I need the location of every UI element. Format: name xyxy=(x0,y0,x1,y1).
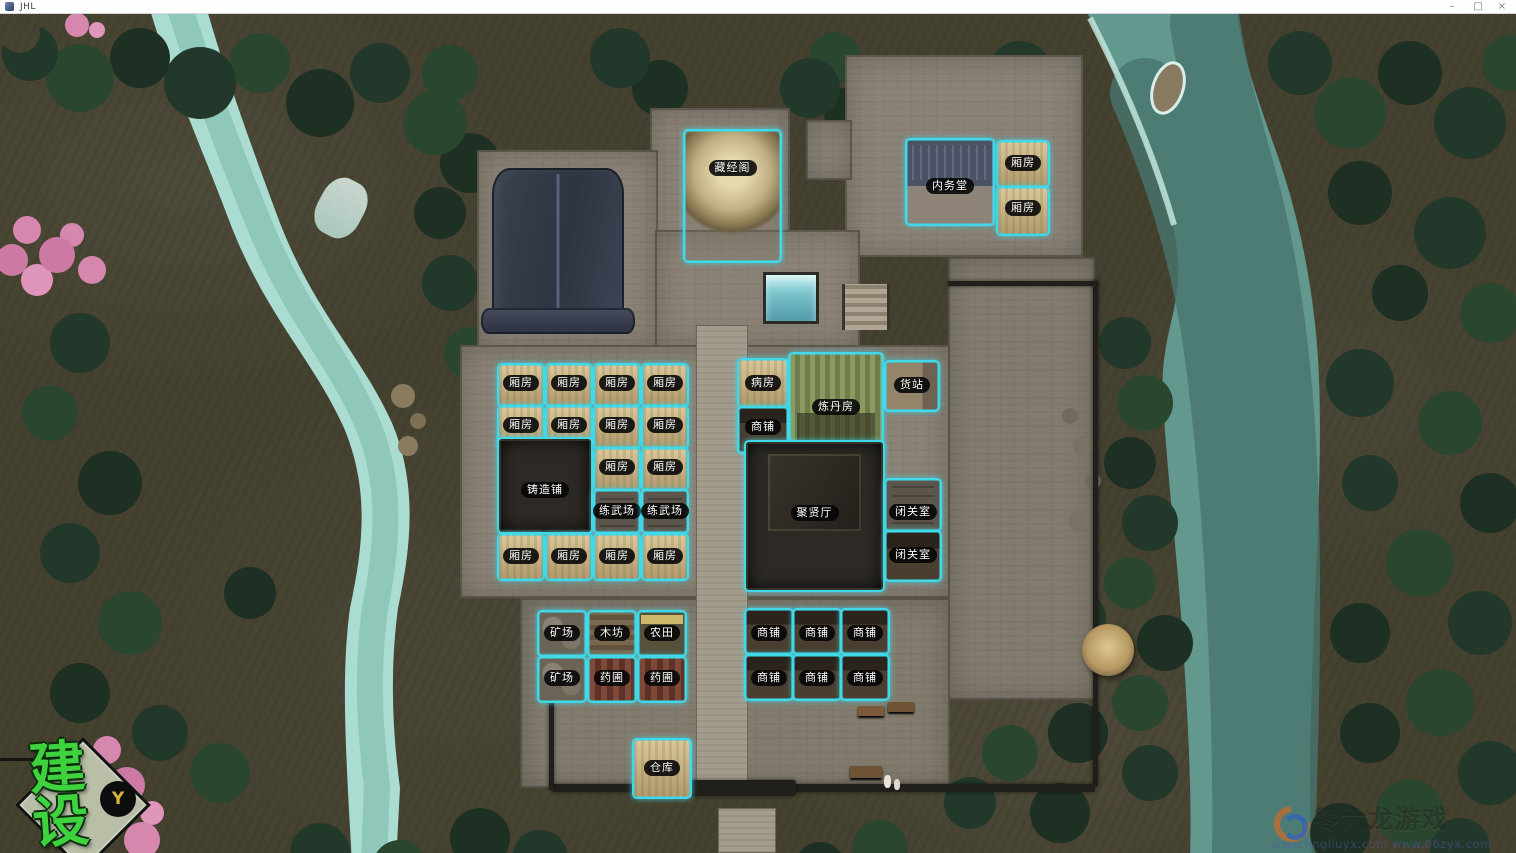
building-label: 商铺 xyxy=(847,670,883,686)
building-label: 厢房 xyxy=(647,459,683,475)
building-alchemy[interactable]: 炼丹房 xyxy=(788,352,884,454)
building-hall-blue[interactable]: 内务堂 xyxy=(905,138,995,226)
building-label: 练武场 xyxy=(593,503,641,519)
building-room[interactable]: 厢房 xyxy=(497,363,545,407)
building-label: 厢房 xyxy=(599,548,635,564)
building-great-hall[interactable]: 聚贤厅 xyxy=(744,440,885,592)
watermark-urls: www.lingliuyx.com www.06zyx.com xyxy=(1272,837,1508,851)
building-room[interactable]: 厢房 xyxy=(641,533,689,581)
building-shop[interactable]: 商铺 xyxy=(744,608,794,655)
building-shop[interactable]: 商铺 xyxy=(792,654,842,701)
building-label: 厢房 xyxy=(503,417,539,433)
animal-prop xyxy=(894,779,900,790)
building-pavilion[interactable]: 藏经阁 xyxy=(683,129,782,263)
building-herb[interactable]: 药圃 xyxy=(637,656,687,703)
building-room[interactable]: 厢房 xyxy=(545,533,593,581)
maximize-button[interactable]: □ xyxy=(1466,0,1490,13)
animal-prop xyxy=(884,775,891,788)
building-label: 商铺 xyxy=(847,625,883,641)
grand-temple-roof xyxy=(492,168,624,320)
building-label: 货站 xyxy=(894,377,930,393)
building-label: 农田 xyxy=(644,625,680,641)
table-prop xyxy=(888,702,914,712)
building-room[interactable]: 厢房 xyxy=(497,533,545,581)
building-label: 矿场 xyxy=(544,625,580,641)
courtyard-east xyxy=(948,257,1095,700)
building-label: 厢房 xyxy=(647,548,683,564)
building-label: 厢房 xyxy=(551,548,587,564)
building-label: 商铺 xyxy=(751,670,787,686)
cart-prop xyxy=(850,766,882,778)
build-button-label[interactable]: 建设 xyxy=(24,740,93,852)
building-room[interactable]: 厢房 xyxy=(593,363,641,407)
building-label: 商铺 xyxy=(751,625,787,641)
building-label: 厢房 xyxy=(599,459,635,475)
water-pool xyxy=(763,272,819,324)
building-room[interactable]: 厢房 xyxy=(545,363,593,407)
site-watermark: 零六龙游戏 www.lingliuyx.com www.06zyx.com xyxy=(1272,800,1508,851)
platform-connector xyxy=(806,120,852,180)
building-shop[interactable]: 商铺 xyxy=(744,654,794,701)
building-room[interactable]: 厢房 xyxy=(593,405,641,449)
building-depot[interactable]: 货站 xyxy=(884,360,940,412)
app-icon xyxy=(5,2,14,11)
building-room[interactable]: 厢房 xyxy=(996,140,1050,188)
building-label: 闭关室 xyxy=(889,504,937,520)
minimize-button[interactable]: – xyxy=(1440,0,1464,13)
building-label: 厢房 xyxy=(647,417,683,433)
building-room[interactable]: 仓库 xyxy=(632,738,692,799)
building-label: 内务堂 xyxy=(926,178,974,194)
gate-path xyxy=(718,808,776,853)
wall-south-right xyxy=(795,784,1095,792)
building-wood[interactable]: 木坊 xyxy=(587,610,637,657)
building-shop[interactable]: 商铺 xyxy=(792,608,842,655)
building-farm[interactable]: 农田 xyxy=(637,610,687,657)
building-label: 木坊 xyxy=(594,625,630,641)
rocks xyxy=(0,13,16,29)
building-label: 厢房 xyxy=(503,375,539,391)
watermark-logo-icon xyxy=(1272,800,1308,836)
thatched-hut xyxy=(1082,624,1134,676)
building-label: 练武场 xyxy=(641,503,689,519)
building-label: 药圃 xyxy=(594,670,630,686)
window-titlebar: JHL – □ × xyxy=(0,0,1516,14)
building-label: 仓库 xyxy=(644,760,680,776)
building-label: 闭关室 xyxy=(889,547,937,563)
build-hotkey-badge: Y xyxy=(100,781,136,817)
building-label: 厢房 xyxy=(551,417,587,433)
building-forge[interactable]: 铸造铺 xyxy=(497,437,593,534)
game-screen: 藏经阁内务堂厢房厢房厢房厢房厢房厢房厢房厢房厢房厢房厢房厢房铸造铺练武场练武场厢… xyxy=(0,0,1516,853)
building-mine[interactable]: 矿场 xyxy=(537,610,587,657)
building-label: 聚贤厅 xyxy=(791,505,839,521)
building-label: 厢房 xyxy=(551,375,587,391)
building-label: 商铺 xyxy=(799,625,835,641)
building-room[interactable]: 厢房 xyxy=(996,186,1050,236)
building-room[interactable]: 厢房 xyxy=(593,447,641,491)
table-prop xyxy=(858,706,884,716)
building-label: 厢房 xyxy=(599,375,635,391)
building-room[interactable]: 病房 xyxy=(737,358,789,408)
window-title: JHL xyxy=(20,2,36,12)
building-label: 商铺 xyxy=(799,670,835,686)
building-room[interactable]: 厢房 xyxy=(593,533,641,581)
building-mine[interactable]: 矿场 xyxy=(537,656,587,703)
building-label: 厢房 xyxy=(1005,155,1041,171)
building-room[interactable]: 厢房 xyxy=(641,447,689,491)
watermark-brand: 零六龙游戏 xyxy=(1314,800,1449,836)
building-ground[interactable]: 练武场 xyxy=(641,489,689,534)
wall-north xyxy=(948,281,1098,286)
wall-southwest xyxy=(549,700,554,790)
stairs-east xyxy=(842,284,890,330)
building-ground[interactable]: 闭关室 xyxy=(884,478,942,532)
building-shop[interactable]: 闭关室 xyxy=(884,530,942,582)
building-label: 商铺 xyxy=(745,419,781,435)
building-label: 铸造铺 xyxy=(521,482,569,498)
building-label: 厢房 xyxy=(1005,200,1041,216)
close-button[interactable]: × xyxy=(1490,0,1514,13)
wall-east xyxy=(1093,281,1098,786)
building-room[interactable]: 厢房 xyxy=(641,363,689,407)
building-label: 矿场 xyxy=(544,670,580,686)
building-shop[interactable]: 商铺 xyxy=(840,608,890,655)
building-label: 厢房 xyxy=(503,548,539,564)
building-label: 厢房 xyxy=(599,417,635,433)
south-gate xyxy=(690,780,796,796)
building-herb[interactable]: 药圃 xyxy=(587,656,637,703)
building-label: 病房 xyxy=(745,375,781,391)
building-room[interactable]: 厢房 xyxy=(641,405,689,449)
building-label: 藏经阁 xyxy=(709,160,757,176)
building-label: 药圃 xyxy=(644,670,680,686)
building-label: 炼丹房 xyxy=(812,399,860,415)
building-label: 厢房 xyxy=(647,375,683,391)
building-shop[interactable]: 商铺 xyxy=(840,654,890,701)
building-ground[interactable]: 练武场 xyxy=(593,489,641,534)
